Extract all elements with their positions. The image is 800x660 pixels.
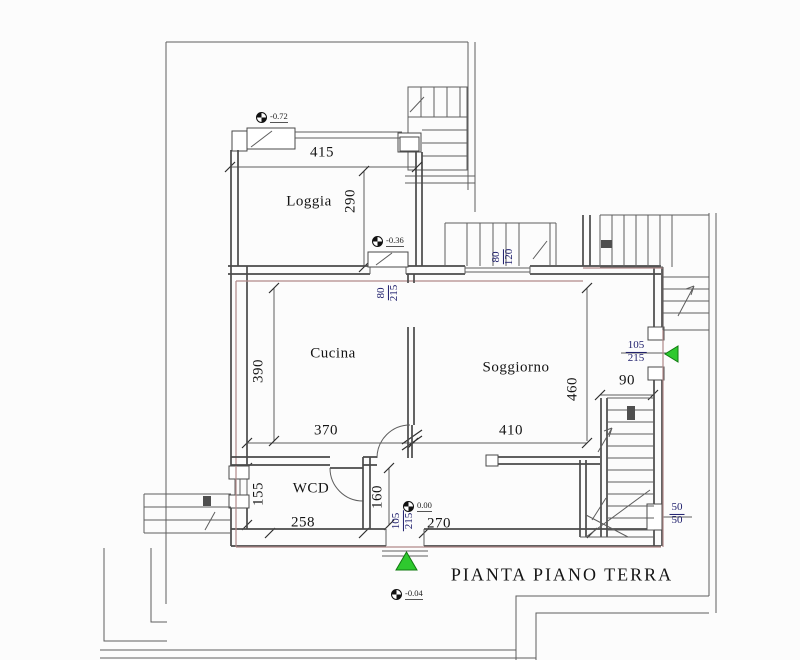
dim-cucina-depth: 390 <box>251 359 268 383</box>
dimension-ticks <box>225 162 658 538</box>
room-label-wcd: WCD <box>293 481 330 498</box>
cucina-door <box>377 425 412 458</box>
dim-hall-depth: 160 <box>370 485 387 509</box>
internal-walls <box>231 274 600 537</box>
room-label-soggiorno: Soggiorno <box>482 360 549 377</box>
level-marker-exterior: -0.04 <box>391 589 423 600</box>
entrance-arrow-right <box>665 346 678 362</box>
dim-stair-width: 90 <box>619 373 635 390</box>
dim-internal-door: 80 215 <box>376 285 400 302</box>
page-title: PIANTA PIANO TERRA <box>451 565 673 586</box>
dim-loggia-width: 415 <box>310 145 334 162</box>
exterior-steps <box>144 494 231 533</box>
floor-plan-page: Loggia Cucina Soggiorno WCD 415 290 390 … <box>0 0 800 660</box>
internal-staircase <box>580 398 654 537</box>
benchmark-icon <box>391 589 402 600</box>
level-marker-upper-terrace: -0.72 <box>256 112 288 123</box>
dim-small-window: 50 50 <box>670 502 685 526</box>
floor-plan-drawing <box>0 0 800 660</box>
loggia-door <box>368 252 408 267</box>
benchmark-icon <box>372 236 383 247</box>
benchmark-icon <box>256 112 267 123</box>
upper-building-block <box>398 87 475 266</box>
dim-loggia-depth: 290 <box>343 189 360 213</box>
dim-cucina-width: 370 <box>314 423 338 440</box>
dim-top-window: 80 120 <box>491 249 515 266</box>
dim-wcd-width: 258 <box>291 515 315 532</box>
dim-entrance-door: 105 215 <box>391 511 415 532</box>
room-label-loggia: Loggia <box>286 194 332 211</box>
dim-soggiorno-depth: 460 <box>565 377 582 401</box>
level-marker-loggia: -0.36 <box>372 236 404 247</box>
room-label-cucina: Cucina <box>310 346 356 363</box>
dim-hall-width: 270 <box>427 516 451 533</box>
dim-soggiorno-width: 410 <box>499 423 523 440</box>
level-marker-interior: 0.00 <box>403 501 432 512</box>
dim-wcd-depth: 155 <box>251 482 268 506</box>
dim-side-door: 105 215 <box>626 340 647 364</box>
entrance-arrow-bottom <box>396 552 417 570</box>
benchmark-icon <box>403 501 414 512</box>
unit-outline-red <box>236 268 663 547</box>
small-window <box>647 504 662 530</box>
wcd-door <box>330 468 363 501</box>
wcd-window <box>229 466 249 508</box>
